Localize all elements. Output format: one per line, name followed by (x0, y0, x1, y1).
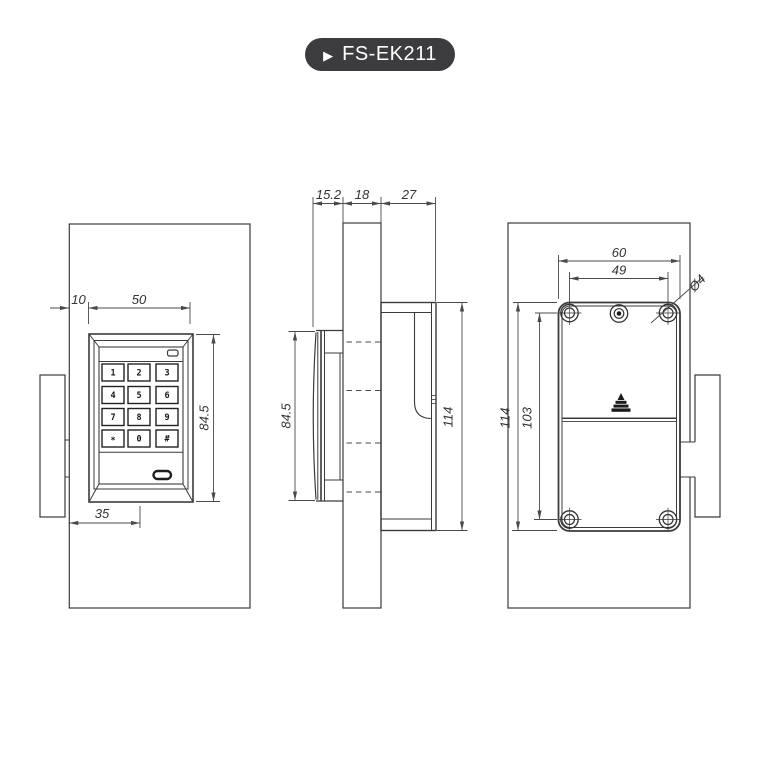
keypad-key-0: 0 (128, 430, 150, 447)
keypad-key-7: 7 (102, 409, 124, 426)
dim-back-lock-height: 114 (498, 408, 513, 429)
dim-screw-span-width: 49 (612, 263, 626, 278)
back-side-latch (680, 375, 721, 517)
keypad-front-curve (313, 333, 316, 500)
dim-door-thickness: 18 (355, 187, 370, 202)
svg-text:3: 3 (164, 369, 169, 379)
keypad-key-hash: # (156, 430, 178, 447)
front-view: 1 2 3 4 5 6 7 8 9 * 0 # (40, 224, 250, 608)
dim-keypad-depth: 15.2 (316, 187, 342, 202)
keypad-profile (313, 331, 343, 502)
latch-tab (680, 442, 696, 477)
keypad-unit: 1 2 3 4 5 6 7 8 9 * 0 # (89, 334, 193, 502)
dim-lock-depth: 27 (401, 187, 417, 202)
keypad-key-9: 9 (156, 409, 178, 426)
side-dimensions: 15.2 18 27 84.5 114 (279, 187, 468, 531)
latch-channel (415, 313, 432, 419)
dim-screw-diameter: Ø4 (685, 271, 708, 295)
keyhole-slot (154, 471, 172, 479)
svg-text:6: 6 (164, 391, 169, 401)
hidden-lines (347, 342, 381, 492)
front-side-latch (40, 375, 69, 517)
svg-text:0: 0 (136, 435, 141, 445)
svg-text:7: 7 (110, 413, 115, 423)
svg-text:9: 9 (164, 413, 169, 423)
svg-text:#: # (164, 435, 170, 445)
dim-side-keypad-height: 84.5 (279, 403, 294, 429)
svg-text:5: 5 (136, 391, 141, 401)
technical-drawing-page: ▶ FS-EK211 (0, 0, 760, 760)
svg-text:8: 8 (136, 413, 141, 423)
keypad-key-6: 6 (156, 387, 178, 404)
lock-back-plate (558, 301, 681, 532)
dim-side-lock-height: 114 (441, 407, 456, 428)
svg-text:*: * (110, 436, 115, 446)
svg-text:1: 1 (110, 369, 115, 379)
keypad-key-4: 4 (102, 387, 124, 404)
dim-lock-width: 60 (612, 245, 627, 260)
back-view: 60 49 Ø4 114 103 (498, 223, 721, 608)
side-door-panel (343, 223, 381, 608)
dim-center-offset: 35 (95, 506, 110, 521)
side-view: 15.2 18 27 84.5 114 (279, 187, 468, 608)
keypad-key-star: * (102, 430, 124, 447)
keypad-key-8: 8 (128, 409, 150, 426)
dimension-drawing: 1 2 3 4 5 6 7 8 9 * 0 # (0, 0, 760, 760)
keypad-key-3: 3 (156, 364, 178, 381)
lock-body-profile (381, 303, 436, 531)
keypad-key-2: 2 (128, 364, 150, 381)
dim-edge-offset: 10 (71, 292, 86, 307)
dim-keypad-width: 50 (132, 292, 147, 307)
svg-text:2: 2 (136, 369, 141, 379)
svg-text:4: 4 (110, 391, 115, 401)
dim-screw-span-height: 103 (520, 406, 535, 428)
keypad-key-1: 1 (102, 364, 124, 381)
keypad-key-5: 5 (128, 387, 150, 404)
dim-keypad-height: 84.5 (197, 405, 212, 431)
